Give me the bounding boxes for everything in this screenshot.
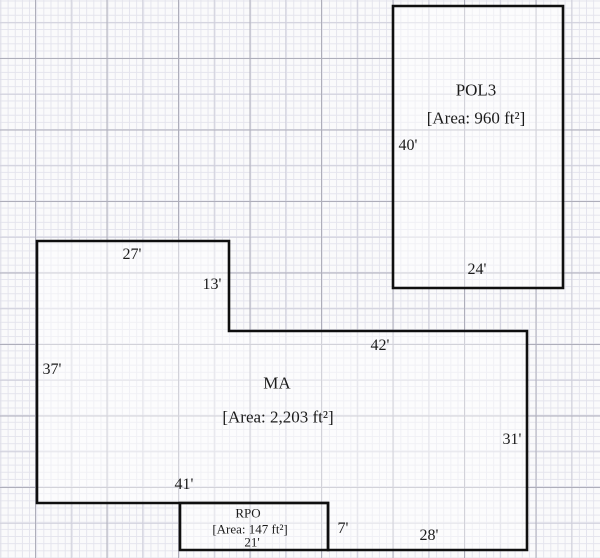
rpo-dimension-label: 21' bbox=[244, 536, 259, 549]
ma-name-label: MA bbox=[263, 375, 290, 392]
pol3-dimension-label: 40' bbox=[399, 138, 418, 154]
pol3-name-label: POL3 bbox=[456, 82, 497, 99]
pol3-dimension-label: 24' bbox=[468, 262, 487, 278]
ma-dimension-label: 28' bbox=[420, 528, 439, 544]
ma-dimension-label: 7' bbox=[338, 521, 349, 537]
ma-dimension-label: 31' bbox=[503, 432, 522, 448]
pol3-area-label: [Area: 960 ft²] bbox=[427, 110, 526, 127]
pol3-outline bbox=[393, 6, 563, 288]
ma-dimension-label: 41' bbox=[175, 477, 194, 493]
ma-dimension-label: 13' bbox=[203, 277, 222, 293]
ma-area-label: [Area: 2,203 ft²] bbox=[222, 409, 333, 426]
graph-paper-canvas: POL3[Area: 960 ft²]40'24'MA[Area: 2,203 … bbox=[0, 0, 600, 558]
ma-dimension-label: 42' bbox=[371, 338, 390, 354]
ma-dimension-label: 37' bbox=[43, 362, 62, 378]
ma-dimension-label: 27' bbox=[123, 247, 142, 263]
diagram-svg bbox=[0, 0, 600, 558]
rpo-name-label: RPO bbox=[235, 507, 260, 520]
